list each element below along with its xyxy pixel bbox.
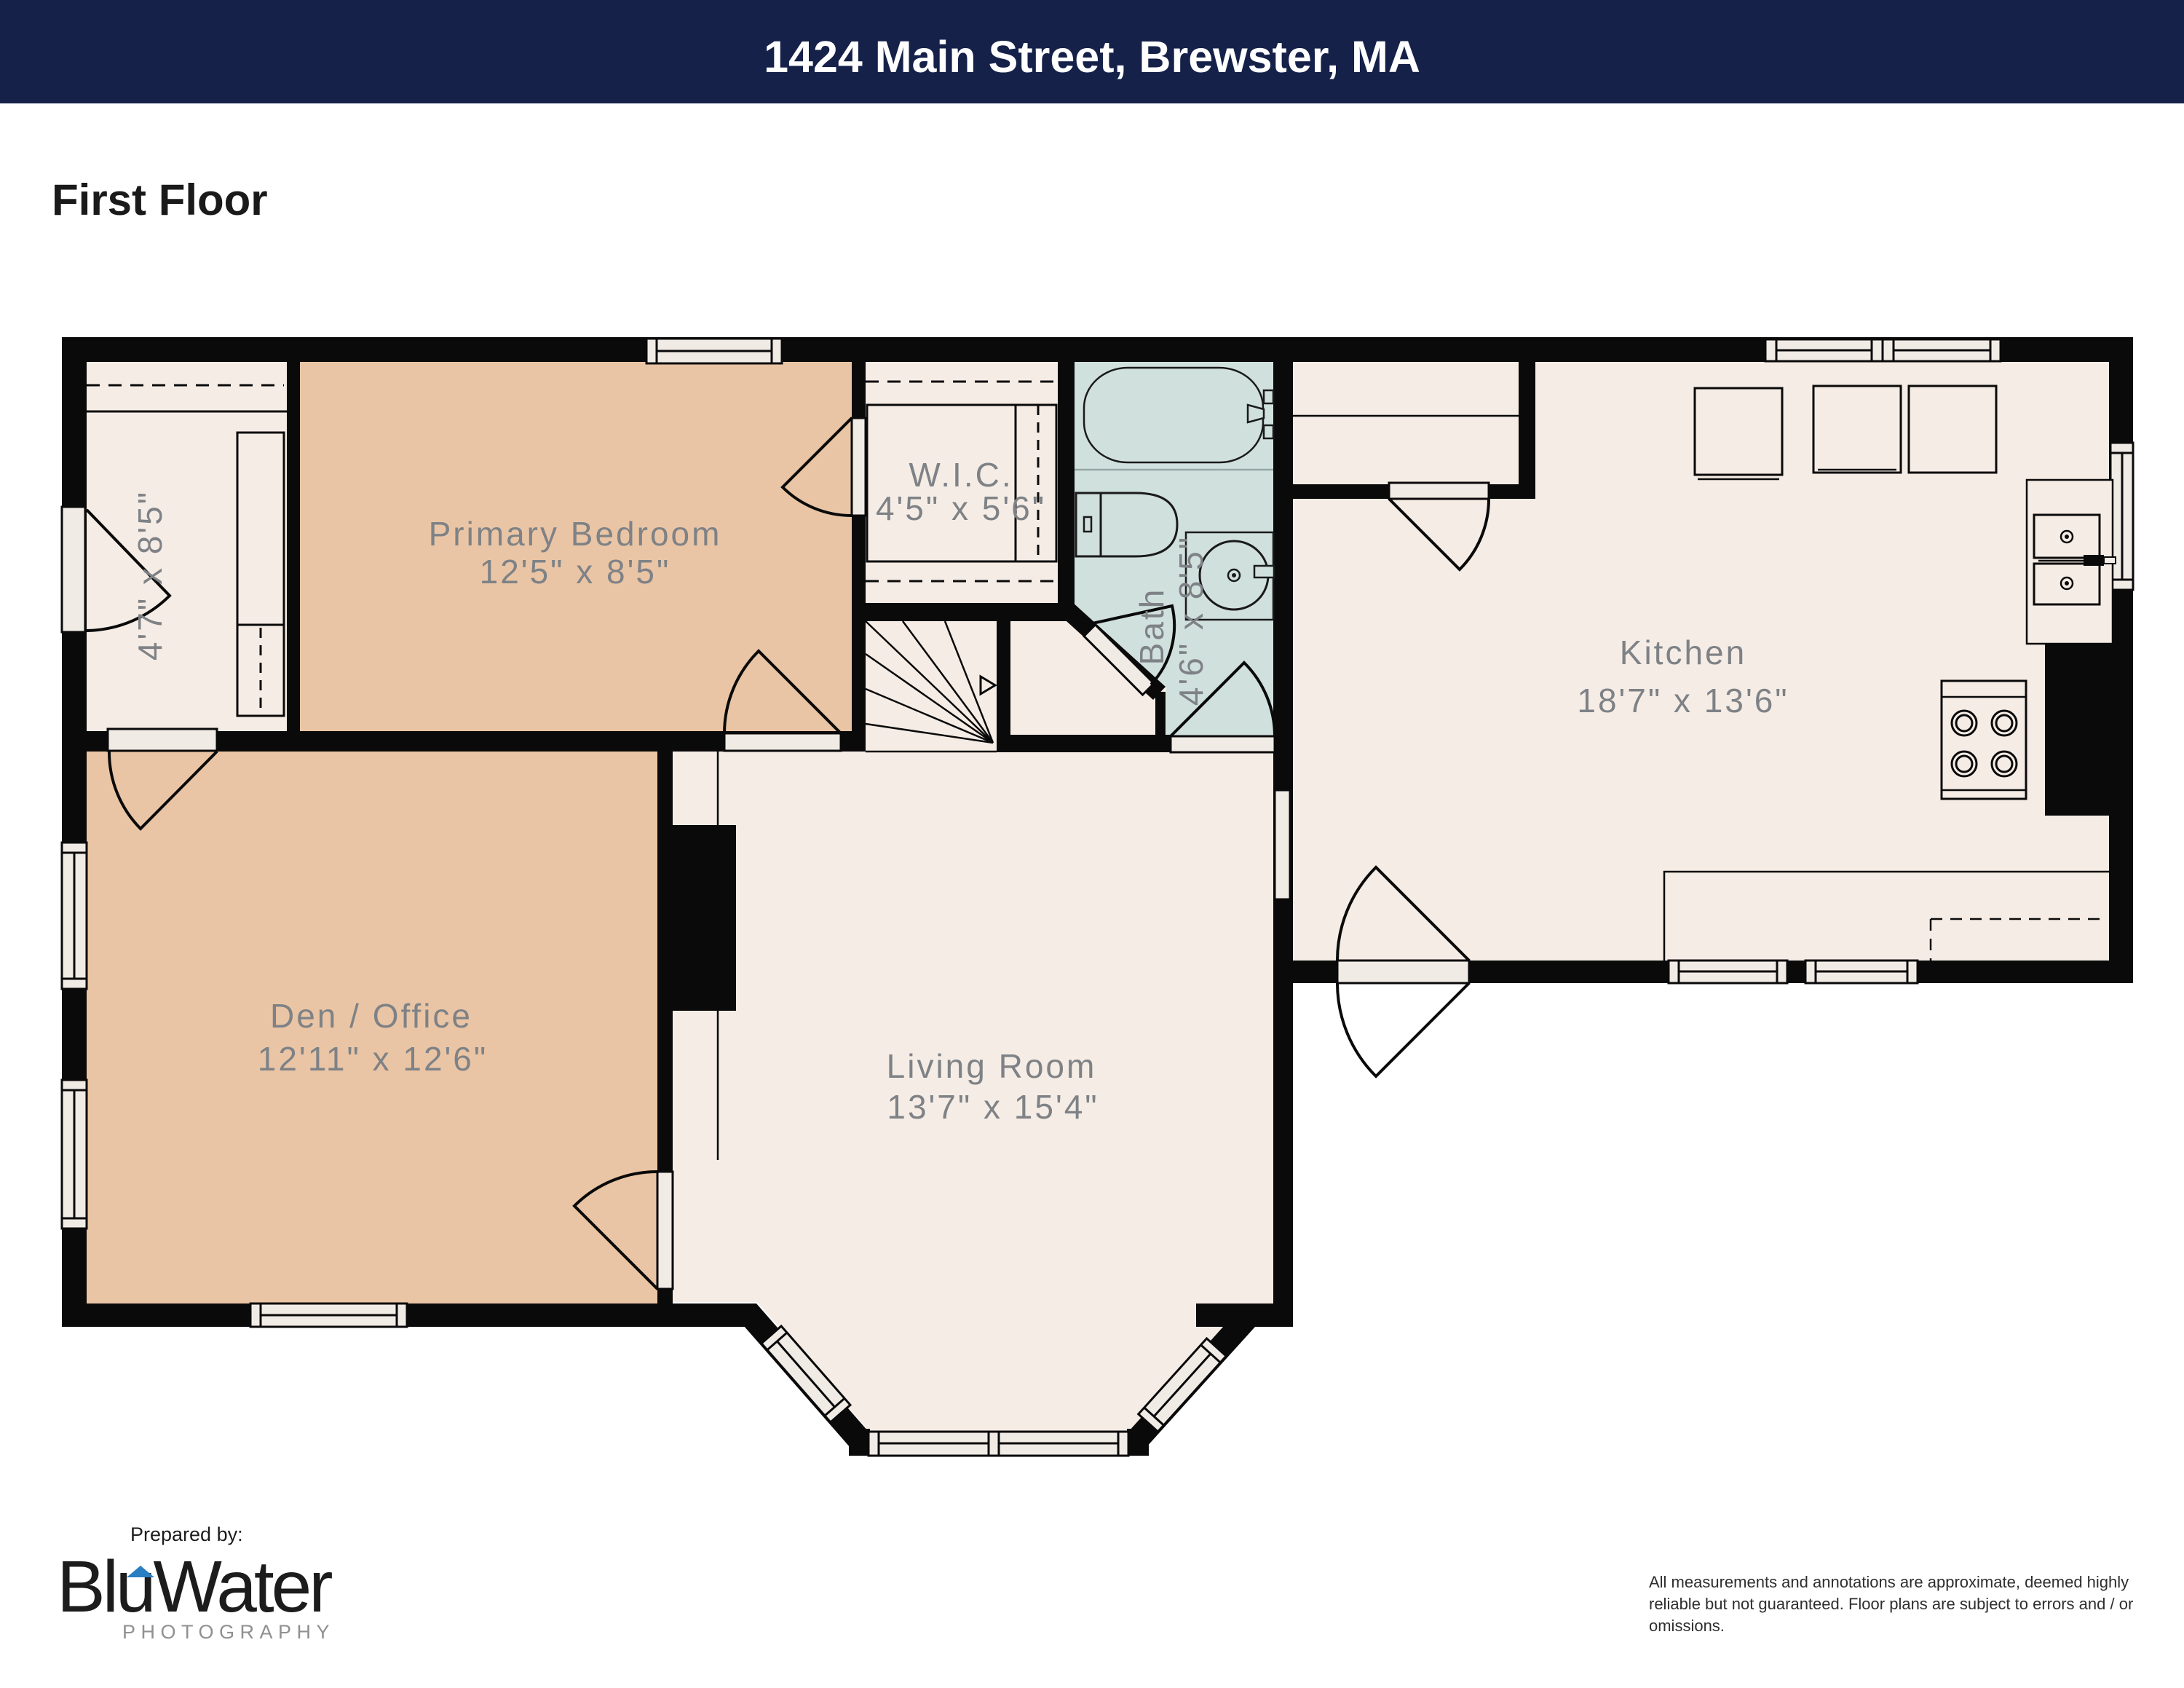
- svg-text:18'7" x 13'6": 18'7" x 13'6": [1577, 682, 1789, 719]
- svg-text:13'7" x 15'4": 13'7" x 15'4": [887, 1088, 1099, 1126]
- svg-text:First Floor: First Floor: [52, 175, 268, 224]
- svg-text:Prepared by:: Prepared by:: [130, 1523, 243, 1545]
- svg-text:Bath: Bath: [1133, 588, 1171, 666]
- svg-text:Den / Office: Den / Office: [270, 997, 472, 1035]
- svg-text:Primary Bedroom: Primary Bedroom: [429, 515, 722, 553]
- svg-text:reliable but not guaranteed. F: reliable but not guaranteed. Floor plans…: [1649, 1595, 2133, 1613]
- svg-text:4'6" x 8'5": 4'6" x 8'5": [1172, 535, 1210, 706]
- svg-text:Kitchen: Kitchen: [1620, 634, 1746, 671]
- svg-text:PHOTOGRAPHY: PHOTOGRAPHY: [122, 1621, 335, 1643]
- svg-text:omissions.: omissions.: [1649, 1617, 1725, 1635]
- svg-text:W.I.C.: W.I.C.: [909, 456, 1013, 494]
- svg-text:Living Room: Living Room: [887, 1047, 1097, 1085]
- svg-text:4'5" x 5'6": 4'5" x 5'6": [876, 489, 1046, 527]
- svg-text:4'7" x 8'5": 4'7" x 8'5": [131, 490, 169, 660]
- svg-text:All measurements and annotatio: All measurements and annotations are app…: [1649, 1573, 2129, 1591]
- svg-text:12'11" x 12'6": 12'11" x 12'6": [258, 1040, 488, 1078]
- svg-text:12'5" x 8'5": 12'5" x 8'5": [480, 553, 671, 591]
- svg-text:1424 Main Street, Brewster, MA: 1424 Main Street, Brewster, MA: [764, 32, 1420, 82]
- svg-text:BluWater: BluWater: [57, 1546, 332, 1628]
